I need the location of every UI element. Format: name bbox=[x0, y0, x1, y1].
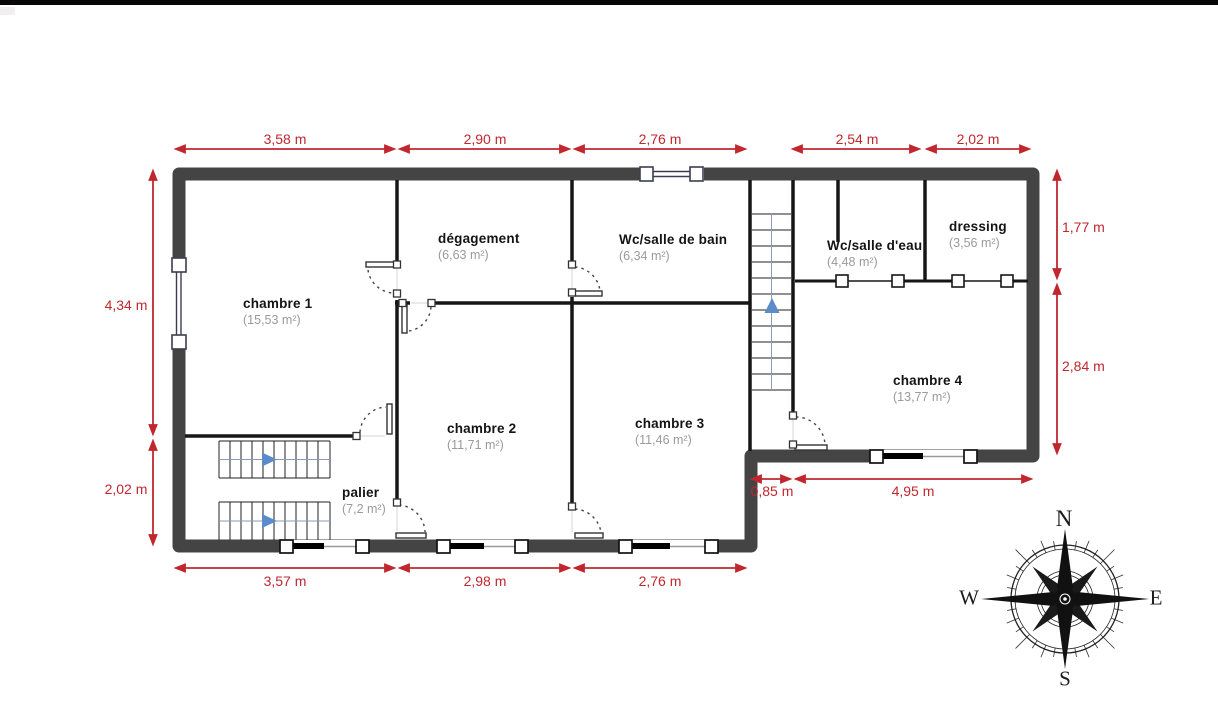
staircase-palier bbox=[219, 441, 330, 540]
room-name: Wc/salle de bain bbox=[619, 231, 727, 248]
window-top-icon bbox=[640, 167, 704, 181]
dim-left-1: 4,34 m bbox=[105, 297, 148, 313]
dim-right-1: 1,77 m bbox=[1062, 219, 1105, 235]
dim-top-2: 2,90 m bbox=[464, 131, 507, 147]
room-label-chambre-2: chambre 2 (11,71 m²) bbox=[447, 420, 516, 454]
window-bottom-1-icon bbox=[280, 540, 369, 553]
sliding-partition bbox=[795, 275, 1028, 287]
staircase-central bbox=[752, 214, 791, 390]
room-area: (6,34 m²) bbox=[619, 248, 727, 265]
window-chambre4-icon bbox=[870, 450, 977, 463]
room-area: (4,48 m²) bbox=[827, 254, 922, 271]
room-label-wc-salle-deau: Wc/salle d'eau (4,48 m²) bbox=[827, 237, 922, 271]
stairs-right-arrow-icon bbox=[262, 453, 277, 467]
compass-east-label: E bbox=[1150, 586, 1163, 611]
stairs-right-arrow-icon bbox=[262, 514, 277, 528]
dim-top-1: 3,58 m bbox=[264, 131, 307, 147]
dim-bottom-1: 3,57 m bbox=[264, 573, 307, 589]
room-area: (6,63 m²) bbox=[438, 247, 520, 264]
room-area: (11,71 m²) bbox=[447, 437, 516, 454]
room-area: (3,56 m²) bbox=[949, 235, 1007, 252]
dim-bottom-right: 4,95 m bbox=[892, 483, 935, 499]
room-name: chambre 3 bbox=[635, 415, 704, 432]
dim-bottom-3: 2,76 m bbox=[639, 573, 682, 589]
room-label-wc-salle-de-bain: Wc/salle de bain (6,34 m²) bbox=[619, 231, 727, 265]
stairs-up-arrow-icon bbox=[765, 298, 780, 313]
dim-top-4: 2,54 m bbox=[836, 131, 879, 147]
room-name: Wc/salle d'eau bbox=[827, 237, 922, 254]
room-label-chambre-4: chambre 4 (13,77 m²) bbox=[893, 372, 962, 406]
compass-west-label: W bbox=[959, 586, 979, 611]
room-label-chambre-3: chambre 3 (11,46 m²) bbox=[635, 415, 704, 449]
room-area: (11,46 m²) bbox=[635, 432, 704, 449]
room-area: (13,77 m²) bbox=[893, 389, 962, 406]
room-name: chambre 2 bbox=[447, 420, 516, 437]
dim-bottom-2: 2,98 m bbox=[464, 573, 507, 589]
dim-right-2: 2,84 m bbox=[1062, 358, 1105, 374]
room-area: (7,2 m²) bbox=[342, 501, 386, 518]
room-name: palier bbox=[342, 484, 386, 501]
compass-rose-icon bbox=[981, 529, 1149, 669]
room-area: (15,53 m²) bbox=[243, 312, 312, 329]
dim-top-5: 2,02 m bbox=[957, 131, 1000, 147]
dim-left-2: 2,02 m bbox=[105, 481, 148, 497]
window-bottom-2-icon bbox=[437, 540, 528, 553]
window-left-icon bbox=[172, 258, 186, 349]
dim-top-3: 2,76 m bbox=[639, 131, 682, 147]
window-bottom-3-icon bbox=[619, 540, 718, 553]
room-name: chambre 1 bbox=[243, 295, 312, 312]
plan-canvas bbox=[0, 0, 1218, 719]
room-label-palier: palier (7,2 m²) bbox=[342, 484, 386, 518]
room-label-chambre-1: chambre 1 (15,53 m²) bbox=[243, 295, 312, 329]
room-name: dressing bbox=[949, 218, 1007, 235]
room-name: dégagement bbox=[438, 230, 520, 247]
dim-step: 0,85 m bbox=[751, 483, 794, 499]
room-label-dressing: dressing (3,56 m²) bbox=[949, 218, 1007, 252]
room-label-degagement: dégagement (6,63 m²) bbox=[438, 230, 520, 264]
compass-south-label: S bbox=[1059, 667, 1071, 692]
compass-north-label: N bbox=[1056, 506, 1073, 532]
floor-plan-page: chambre 1 (15,53 m²) dégagement (6,63 m²… bbox=[0, 0, 1218, 719]
room-name: chambre 4 bbox=[893, 372, 962, 389]
